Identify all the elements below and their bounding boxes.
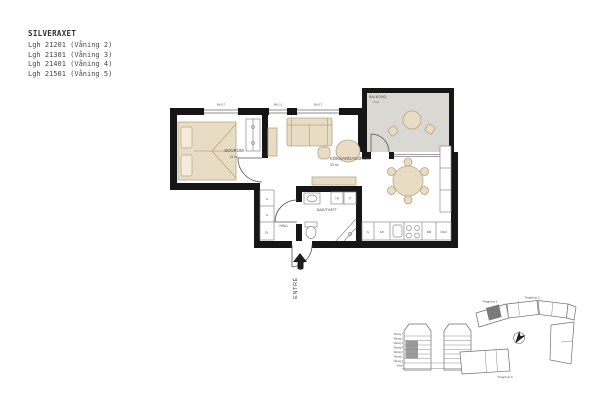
wardrobe-label: G bbox=[367, 230, 369, 234]
window-sill-label: Bh 0,7 bbox=[314, 103, 323, 107]
hall: G G EL HALL bbox=[260, 190, 289, 240]
bedroom: SOVRUM 11 m² bbox=[178, 119, 262, 182]
pillow bbox=[181, 127, 192, 148]
oven-label: UGN bbox=[440, 230, 446, 234]
media-bench bbox=[312, 177, 356, 185]
stairwell-label: Trapphus 3 bbox=[497, 375, 512, 379]
window-sill-label: Bh 0,7 bbox=[217, 103, 226, 107]
tall-cabinet bbox=[440, 146, 451, 212]
pillow bbox=[181, 155, 192, 176]
balcony-label: BALKONG bbox=[369, 95, 387, 99]
floor-label: Våning 7 bbox=[394, 333, 404, 336]
electric-cabinet-label: EL bbox=[265, 231, 269, 235]
stairwell-label: Trapphus 2 bbox=[524, 296, 539, 300]
floor-plan-canvas: BALKONG 7 m² bbox=[0, 0, 600, 400]
washbasin bbox=[304, 193, 320, 204]
bathroom: TM TT BAD/TVÄTT bbox=[275, 192, 356, 241]
dryer-label: TT bbox=[348, 197, 352, 201]
floor-label: Våning 2 bbox=[394, 356, 404, 359]
bedroom-door-swing bbox=[238, 158, 262, 182]
floor-label: Våning 4 bbox=[394, 347, 404, 350]
dining-chair bbox=[388, 187, 396, 195]
closet-label: G bbox=[266, 197, 268, 201]
balcony-table bbox=[403, 111, 421, 129]
washer-label: TM bbox=[335, 197, 339, 201]
bath-door-swing bbox=[275, 200, 297, 222]
entry-arrow-icon bbox=[293, 253, 307, 270]
dining-chair bbox=[404, 196, 412, 204]
living-area: 33 m² bbox=[330, 163, 340, 167]
living-label: KÖK/VARDAGSRUM bbox=[330, 156, 370, 161]
dining-chair bbox=[404, 158, 412, 166]
dishwasher-label: DM bbox=[427, 230, 432, 234]
elevation-diagram: Våning 7 Våning 6 Våning 5 Våning 4 Våni… bbox=[394, 324, 472, 370]
fridge-freezer-label: K/F bbox=[380, 230, 385, 234]
dining-table bbox=[393, 166, 423, 196]
entrance: ENTRÉ bbox=[292, 245, 312, 299]
sideboard bbox=[268, 128, 277, 156]
dining-chair bbox=[388, 168, 396, 176]
dining-chair bbox=[421, 168, 429, 176]
closet-label: G bbox=[266, 213, 268, 217]
site-plan-diagram: Trapphus 1 Trapphus 2 Trapphus 3 bbox=[460, 296, 576, 380]
bedroom-area: 11 m² bbox=[230, 155, 239, 159]
floor-label: Entré bbox=[397, 365, 403, 368]
window-sill-label: Bh 1,1 bbox=[274, 103, 283, 107]
hall-label: HALL bbox=[280, 224, 289, 228]
pouf bbox=[318, 147, 330, 159]
balcony-area: 7 m² bbox=[373, 100, 379, 104]
toilet bbox=[306, 227, 316, 239]
entrance-label: ENTRÉ bbox=[292, 277, 299, 299]
floor-label: Våning 3 bbox=[394, 351, 404, 354]
stairwell-label: Trapphus 1 bbox=[482, 300, 497, 304]
bedroom-label: SOVRUM bbox=[224, 148, 244, 153]
dining-chair bbox=[421, 187, 429, 195]
balcony: BALKONG 7 m² bbox=[362, 88, 454, 152]
floor-label: Våning 1 bbox=[394, 360, 404, 363]
floor-label: Våning 5 bbox=[394, 342, 404, 345]
bath-label: BAD/TVÄTT bbox=[317, 208, 338, 212]
kitchen-counter: G K/F DM UGN bbox=[362, 222, 451, 240]
floor-label: Våning 6 bbox=[394, 338, 404, 341]
